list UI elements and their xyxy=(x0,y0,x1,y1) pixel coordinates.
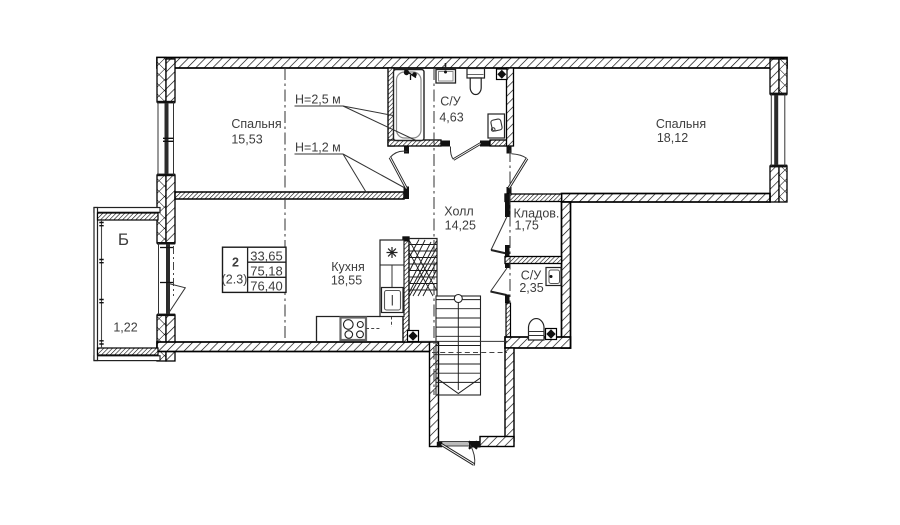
svg-text:18,12: 18,12 xyxy=(657,131,688,145)
svg-text:33,65: 33,65 xyxy=(250,248,283,263)
svg-text:Н=1,2 м: Н=1,2 м xyxy=(295,141,341,155)
svg-text:2: 2 xyxy=(232,256,239,270)
svg-text:Спальня: Спальня xyxy=(231,117,281,131)
svg-text:75,18: 75,18 xyxy=(250,263,283,278)
svg-text:Спальня: Спальня xyxy=(656,117,706,131)
svg-text:4,63: 4,63 xyxy=(439,111,463,125)
svg-text:(2.3): (2.3) xyxy=(222,273,248,287)
svg-text:15,53: 15,53 xyxy=(231,133,262,147)
svg-text:1,75: 1,75 xyxy=(515,219,539,233)
svg-text:Б: Б xyxy=(118,230,129,249)
svg-text:2,35: 2,35 xyxy=(519,281,543,295)
svg-text:76,40: 76,40 xyxy=(250,278,283,293)
svg-text:14,25: 14,25 xyxy=(445,218,476,232)
svg-text:Холл: Холл xyxy=(444,204,473,218)
svg-text:1,22: 1,22 xyxy=(113,321,137,335)
svg-text:С/У: С/У xyxy=(440,95,461,109)
svg-text:Кухня: Кухня xyxy=(331,260,364,274)
svg-text:Н=2,5 м: Н=2,5 м xyxy=(295,93,341,107)
svg-text:18,55: 18,55 xyxy=(331,274,362,288)
